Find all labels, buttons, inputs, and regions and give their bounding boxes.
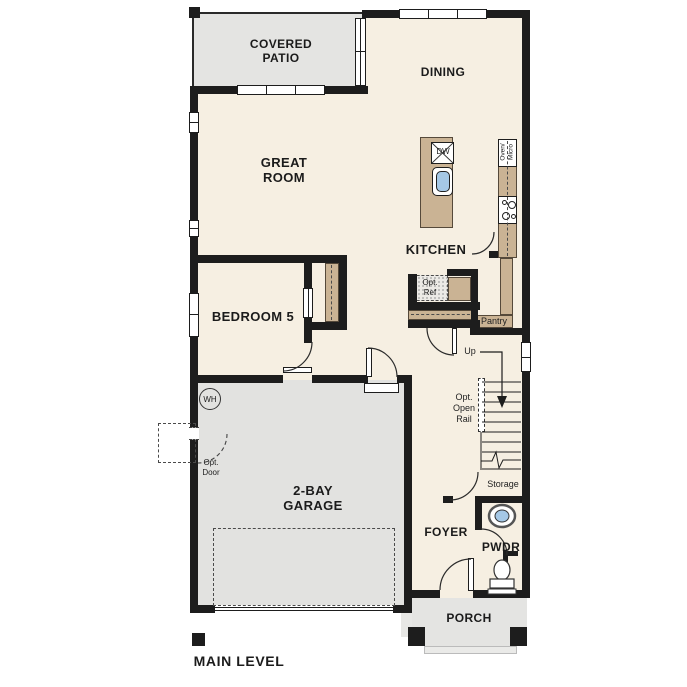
porch-step <box>424 646 517 654</box>
wall <box>304 322 347 330</box>
room-label-dining: DINING <box>421 65 465 79</box>
window <box>521 342 531 372</box>
porch-post <box>510 627 527 646</box>
water-heater-icon: WH <box>199 388 221 410</box>
counter-dash <box>411 314 475 315</box>
wall <box>304 263 312 288</box>
pantry-shelf-vertical <box>500 258 513 315</box>
room-label-kitchen: KITCHEN <box>406 242 467 257</box>
wall <box>404 590 440 598</box>
window <box>237 85 325 95</box>
burner-icon <box>502 212 510 220</box>
wall <box>190 86 237 94</box>
pantry-door-leaf <box>452 328 457 354</box>
wall <box>190 255 347 263</box>
label-storage: Storage <box>487 479 519 490</box>
patio-post <box>189 7 200 18</box>
bedroom5-door-leaf <box>283 367 312 373</box>
garage-door-leaf <box>366 348 372 377</box>
burner-icon <box>508 201 516 209</box>
wall <box>325 86 368 94</box>
room-label-great-room: GREAT ROOM <box>261 155 308 186</box>
wall <box>408 320 480 328</box>
label-dishwasher: DW <box>436 147 449 157</box>
wall <box>190 237 198 293</box>
wall <box>404 383 412 613</box>
closet-shelf-dash <box>331 265 332 320</box>
window <box>189 112 199 133</box>
room-label-garage: 2-BAY GARAGE <box>283 483 342 514</box>
island-sink-basin <box>436 171 450 192</box>
site-marker <box>192 633 205 646</box>
wall <box>475 502 482 530</box>
window <box>189 293 199 337</box>
burner-icon <box>511 214 516 219</box>
plan-title: MAIN LEVEL <box>194 653 285 670</box>
porch-post <box>408 627 425 646</box>
patio-sliding-door <box>355 18 366 86</box>
wall <box>190 133 198 220</box>
wall <box>190 375 283 383</box>
floor-plan: COVERED PATIO DINING GREAT ROOM KITCHEN … <box>0 0 687 687</box>
wall <box>522 372 530 598</box>
window <box>399 9 487 19</box>
room-label-foyer: FOYER <box>424 525 467 539</box>
closet-shelf <box>325 263 339 322</box>
wall <box>489 251 498 258</box>
window <box>189 220 199 237</box>
ref-side-counter <box>448 277 471 301</box>
room-label-powder: PWDR <box>482 540 520 554</box>
wall <box>475 496 530 503</box>
garage-overhead-door-lines <box>215 607 393 611</box>
closet-door <box>303 288 313 318</box>
label-water-heater: WH <box>203 395 216 404</box>
room-label-covered-patio: COVERED PATIO <box>250 37 312 65</box>
wall <box>393 605 412 613</box>
garage-step <box>364 383 399 393</box>
label-opt-door: Opt. Door <box>202 458 219 478</box>
opt-open-rail-band <box>478 378 485 432</box>
kitchen-back-counter <box>408 310 478 320</box>
label-oven-micro: Oven/ Micro <box>500 143 517 160</box>
wall <box>362 10 399 18</box>
wall <box>443 496 453 503</box>
wall <box>408 274 417 302</box>
wall <box>339 263 347 322</box>
wall <box>190 605 215 613</box>
opt-door-opening <box>189 427 199 440</box>
wall <box>397 375 412 383</box>
label-opt-open-rail: Opt. Open Rail <box>453 392 475 425</box>
room-label-porch: PORCH <box>446 611 491 625</box>
wall <box>190 440 198 613</box>
wall <box>473 590 530 598</box>
wall <box>470 328 530 335</box>
wall <box>522 10 530 342</box>
wall <box>408 302 480 310</box>
front-door-leaf <box>468 558 474 591</box>
wall <box>312 375 368 383</box>
garage-bay-outline <box>213 528 395 606</box>
label-up: Up <box>464 346 476 357</box>
room-label-bedroom5: BEDROOM 5 <box>212 309 294 324</box>
label-opt-ref: Opt. Ref <box>422 278 437 298</box>
label-pantry: Pantry <box>481 316 507 327</box>
